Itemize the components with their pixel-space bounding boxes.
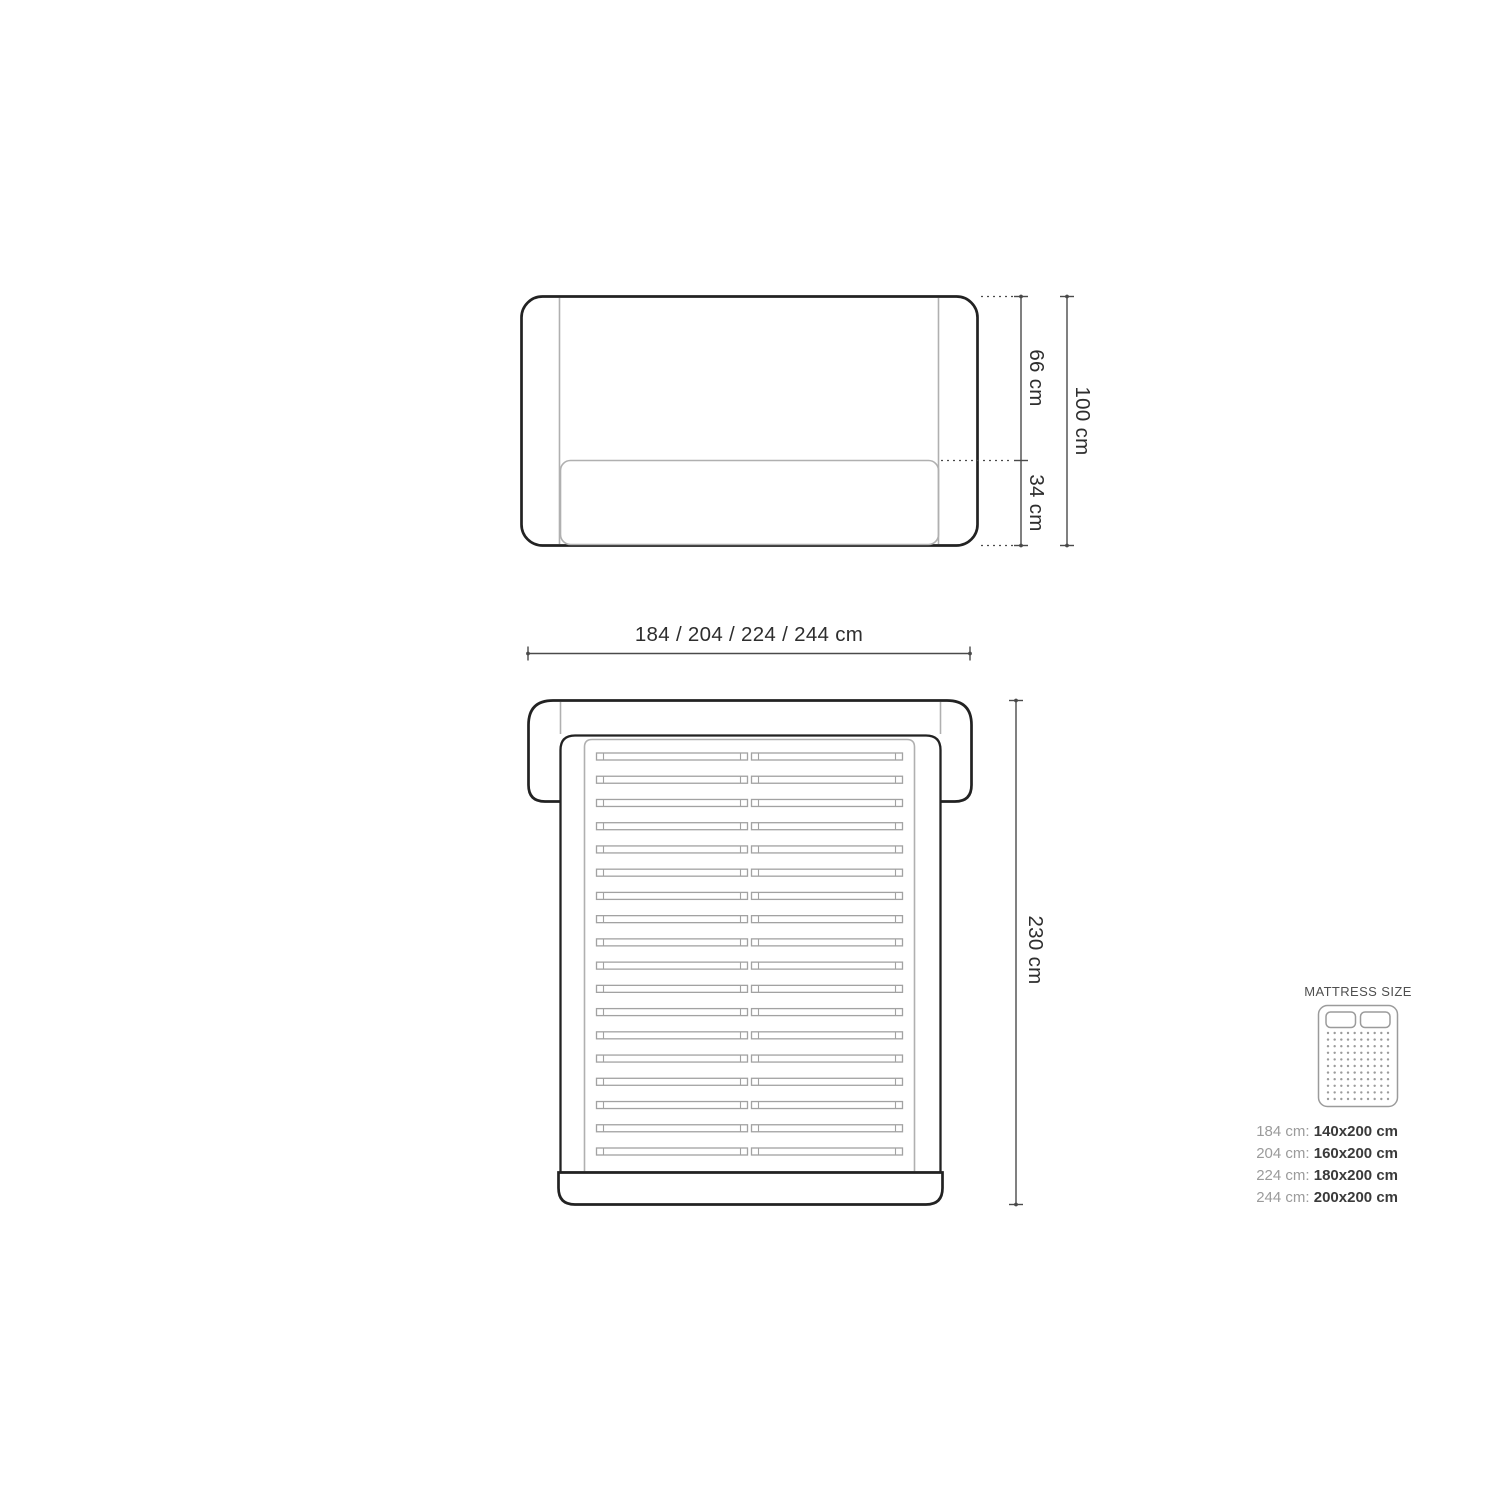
legend-frame-width: 224 cm: [1256, 1167, 1314, 1184]
legend-row: 244 cm: 200x200 cm [1256, 1189, 1398, 1206]
plan-view: 184 / 204 / 224 / 244 cm 230 cm [526, 623, 1047, 1206]
pillow-left-icon [1326, 1012, 1356, 1028]
legend-frame-width: 184 cm: [1256, 1123, 1314, 1140]
legend-mattress-size: 160x200 cm [1314, 1145, 1398, 1162]
legend-frame-width: 244 cm: [1256, 1189, 1314, 1206]
legend-row: 224 cm: 180x200 cm [1256, 1167, 1398, 1184]
legend-mattress-size: 200x200 cm [1314, 1189, 1398, 1206]
footboard-outline [559, 1173, 943, 1205]
mattress-icon [1319, 1006, 1398, 1107]
dim-label-34cm: 34 cm [1025, 474, 1048, 531]
dimension-line-length [1009, 699, 1023, 1207]
front-view: 66 cm 34 cm 100 cm [522, 295, 1095, 548]
dim-label-230cm: 230 cm [1024, 915, 1047, 984]
bed-dimension-diagram: 66 cm 34 cm 100 cm 184 / 204 / 22 [0, 0, 1500, 1500]
legend-mattress-size: 140x200 cm [1314, 1123, 1398, 1140]
dim-label-100cm: 100 cm [1071, 386, 1094, 455]
legend-row: 204 cm: 160x200 cm [1256, 1145, 1398, 1162]
diagram-svg: 66 cm 34 cm 100 cm 184 / 204 / 22 [0, 0, 1500, 1500]
legend-row: 184 cm: 140x200 cm [1256, 1123, 1398, 1140]
dim-label-width: 184 / 204 / 224 / 244 cm [635, 623, 863, 646]
pillow-right-icon [1361, 1012, 1391, 1028]
legend-size-rows: 184 cm: 140x200 cm 204 cm: 160x200 cm 22… [1256, 1123, 1398, 1206]
mattress-size-legend: MATTRESS SIZE 184 cm: 140x200 cm 204 cm:… [1256, 984, 1412, 1206]
legend-title: MATTRESS SIZE [1304, 984, 1412, 999]
bed-front-outline [522, 297, 978, 546]
legend-mattress-size: 180x200 cm [1314, 1167, 1398, 1184]
legend-frame-width: 204 cm: [1256, 1145, 1314, 1162]
dimension-line-width [526, 647, 972, 661]
dim-label-66cm: 66 cm [1025, 349, 1048, 406]
